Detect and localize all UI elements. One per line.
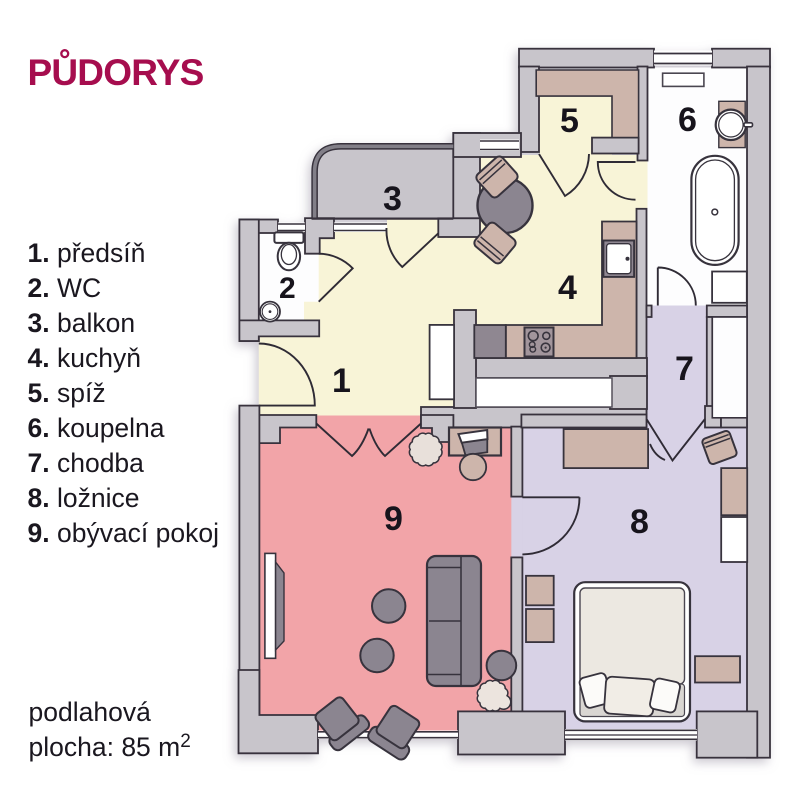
svg-text:7: 7 bbox=[675, 350, 694, 388]
svg-text:PŮDORYS: PŮDORYS bbox=[28, 48, 204, 93]
svg-text:5. spíž: 5. spíž bbox=[28, 378, 106, 408]
svg-text:4: 4 bbox=[558, 269, 577, 307]
svg-text:podlahová: podlahová bbox=[29, 697, 152, 727]
svg-text:9. obývací pokoj: 9. obývací pokoj bbox=[28, 518, 220, 548]
svg-text:3. balkon: 3. balkon bbox=[28, 308, 136, 338]
svg-text:5: 5 bbox=[560, 102, 579, 140]
svg-text:3: 3 bbox=[383, 180, 402, 218]
svg-text:2. WC: 2. WC bbox=[28, 273, 102, 303]
svg-text:4. kuchyň: 4. kuchyň bbox=[28, 343, 141, 373]
svg-text:7. chodba: 7. chodba bbox=[28, 448, 145, 478]
svg-text:8: 8 bbox=[630, 503, 649, 541]
svg-text:2: 2 bbox=[279, 272, 296, 305]
svg-text:1: 1 bbox=[332, 362, 351, 400]
svg-text:8. ložnice: 8. ložnice bbox=[28, 483, 140, 513]
svg-text:plocha: 85 m2: plocha: 85 m2 bbox=[29, 731, 191, 762]
svg-text:1. předsíň: 1. předsíň bbox=[28, 238, 146, 268]
svg-text:6: 6 bbox=[678, 101, 697, 139]
svg-text:9: 9 bbox=[384, 500, 403, 538]
svg-text:6. koupelna: 6. koupelna bbox=[28, 413, 165, 443]
